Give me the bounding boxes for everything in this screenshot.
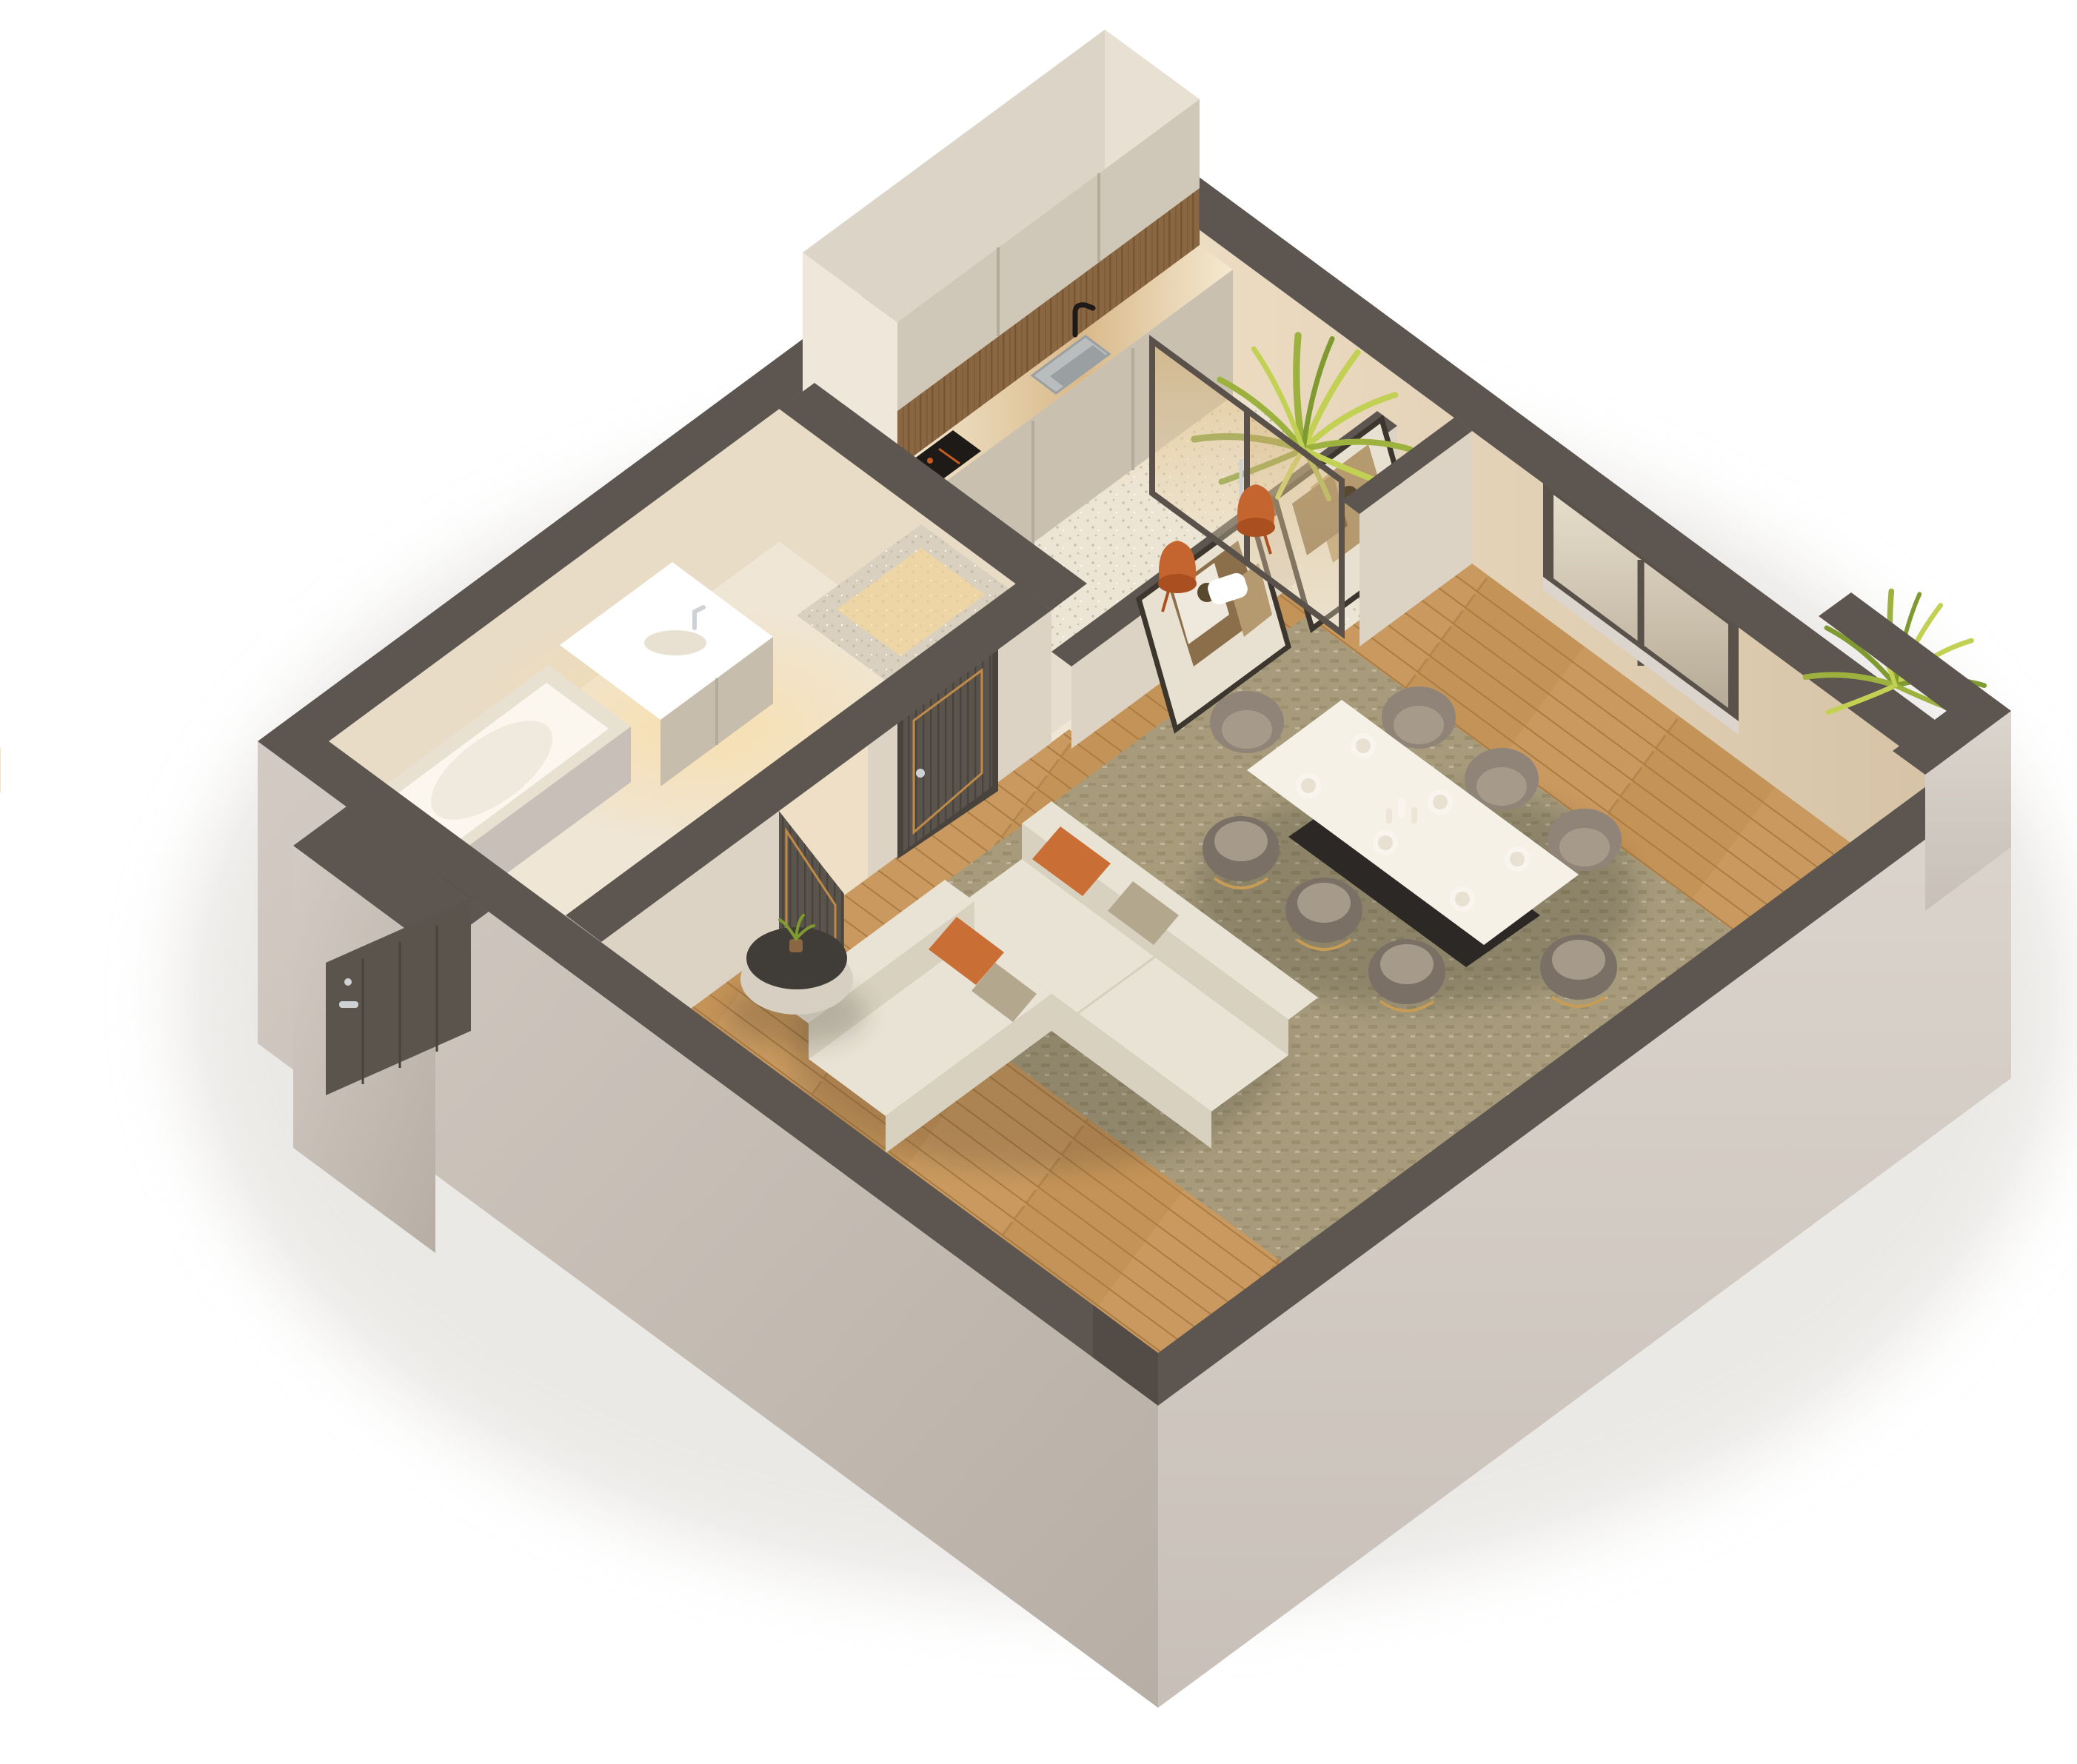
place-setting-2 xyxy=(1428,789,1453,815)
entry-door-handle xyxy=(339,1001,358,1008)
door-1-handle xyxy=(916,769,925,778)
place-setting-6 xyxy=(1450,886,1475,912)
orange-chair-1-seat xyxy=(1158,574,1197,593)
place-setting-5 xyxy=(1373,830,1398,855)
floor-plan-svg xyxy=(0,0,2077,1764)
place-setting-4 xyxy=(1296,773,1321,798)
orange-chair-2-seat xyxy=(1237,518,1275,537)
floor-plan-stage xyxy=(0,0,2077,1764)
vanity-basin xyxy=(644,630,706,655)
entry-door-lock xyxy=(344,978,352,986)
dining-chair-4 xyxy=(1210,691,1284,753)
place-setting-3 xyxy=(1505,846,1530,872)
place-setting-1 xyxy=(1351,733,1376,758)
cooktop-knob-icon xyxy=(927,458,933,464)
